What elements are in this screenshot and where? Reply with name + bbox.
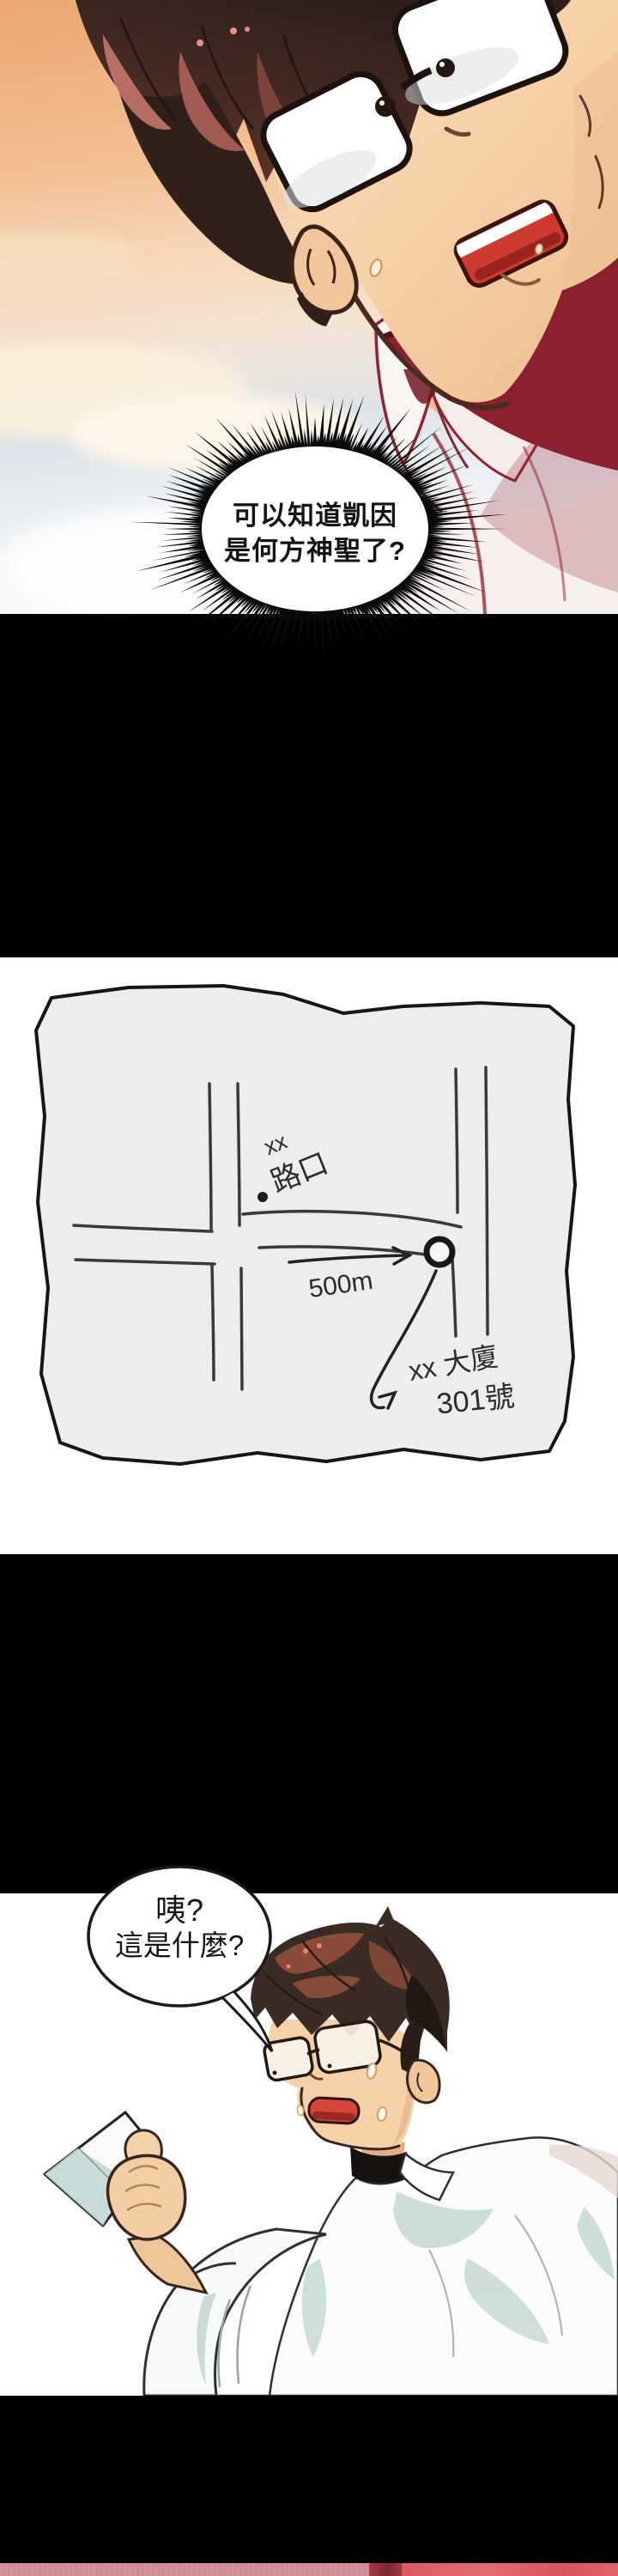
pupil-right [436, 58, 455, 77]
question-speech-bubble: 咦? 這是什麼? [76, 1856, 290, 2067]
comic-page: 可以知道凱因 是何方神聖了? xx 路 [0, 0, 618, 2576]
map-current-location-dot [257, 1192, 268, 1202]
open-mouth-2 [308, 2098, 359, 2124]
bubble-tail [223, 1992, 272, 2051]
next-panel-top-edge [0, 2563, 618, 2576]
black-gutter-2 [0, 1554, 618, 1893]
burst-bubble-line-2: 是何方神聖了? [224, 536, 406, 566]
panel-map-note: xx 路口 500m xx 大廈 301號 [13, 975, 605, 1490]
question-bubble-line-1: 咦? [155, 1893, 203, 1928]
next-panel-edge-divider [369, 2563, 402, 2576]
burst-bubble-line-1: 可以知道凱因 [233, 501, 397, 531]
pupil-left [375, 96, 396, 117]
black-gutter-3 [0, 2396, 618, 2563]
next-panel-edge-right [402, 2563, 618, 2576]
question-bubble-line-2: 這是什麼? [115, 1929, 244, 1961]
ear-2 [408, 2060, 440, 2102]
next-panel-edge-left [0, 2563, 369, 2576]
burst-bubble: 可以知道凱因 是何方神聖了? [112, 382, 524, 691]
map-destination-circle [427, 1239, 452, 1265]
